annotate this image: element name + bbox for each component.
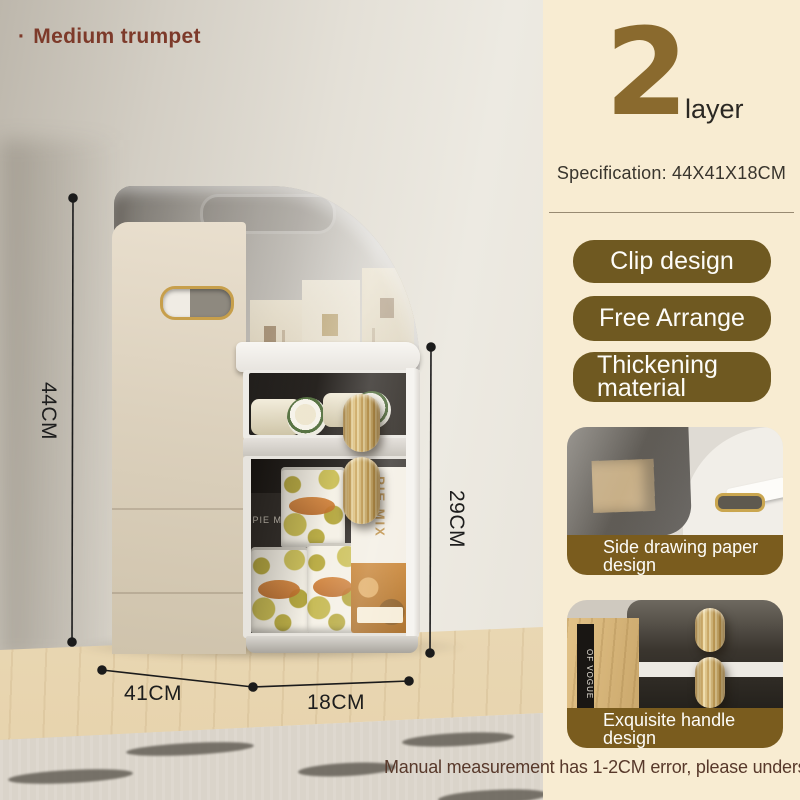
- panel-seam: [112, 508, 246, 510]
- feature-badge-free-arrange: Free Arrange: [573, 296, 771, 341]
- dimension-width: 18CM: [296, 691, 376, 715]
- lower-glass-cover: [251, 459, 409, 633]
- cabinet-middle-compartment: [243, 370, 419, 440]
- layer-count: 2: [605, 14, 689, 134]
- dimension-total-height: 44CM: [38, 371, 60, 451]
- feature-badge-thickening-material: Thickening material: [573, 352, 771, 402]
- cabinet-base: [246, 636, 418, 653]
- product-infographic: PIE MI PIE MIX: [0, 0, 800, 800]
- card1-glass: [567, 427, 692, 539]
- card2-handle-lower: [695, 657, 725, 708]
- product-photo-scene: PIE MI PIE MIX: [0, 0, 543, 800]
- specification-text: Specification: 44X41X18CM: [543, 163, 800, 184]
- card-caption: Exquisite handle design: [567, 708, 783, 748]
- card1-dome: [567, 427, 692, 539]
- cabinet-divider: [243, 438, 419, 458]
- side-paper-slot: [160, 286, 234, 320]
- dimension-depth: 41CM: [113, 682, 193, 706]
- wall-shadow: [0, 140, 120, 660]
- info-panel: 2 layer Specification: 44X41X18CM Clip d…: [543, 0, 800, 800]
- layer-unit-label: layer: [685, 94, 744, 125]
- dimension-front-height: 29CM: [446, 479, 468, 559]
- title-text: Medium trumpet: [33, 25, 201, 48]
- detail-card-handle: OF VOGUE Exquisite handle design: [567, 600, 783, 748]
- panel-seam: [112, 592, 246, 594]
- card-caption: Side drawing paper design: [567, 535, 783, 575]
- variant-title: ·Medium trumpet: [18, 25, 201, 49]
- disclaimer-text: Manual measurement has 1-2CM error, plea…: [384, 757, 800, 778]
- cabinet-lower-compartment: PIE MI PIE MIX: [243, 456, 419, 638]
- title-bullet: ·: [18, 25, 25, 48]
- detail-card-paper-slot: Side drawing paper design: [567, 427, 783, 575]
- gold-handle: [343, 394, 380, 524]
- middle-compartment-interior: [249, 373, 413, 435]
- cabinet-front-edge: [406, 368, 420, 636]
- card1-paper-slot: [715, 493, 765, 512]
- card2-handle-upper: [695, 608, 725, 652]
- middle-glass-cover: [249, 373, 413, 435]
- cabinet-side-panel: [112, 222, 246, 654]
- panel-divider: [549, 212, 794, 213]
- lower-compartment-interior: PIE MI PIE MIX: [251, 459, 409, 633]
- cabinet-shelf: [236, 342, 420, 372]
- gold-handle-lower: [343, 457, 380, 524]
- feature-badge-clip-design: Clip design: [573, 240, 771, 283]
- gold-handle-upper: [343, 394, 380, 452]
- card2-gold-handle: [695, 608, 725, 708]
